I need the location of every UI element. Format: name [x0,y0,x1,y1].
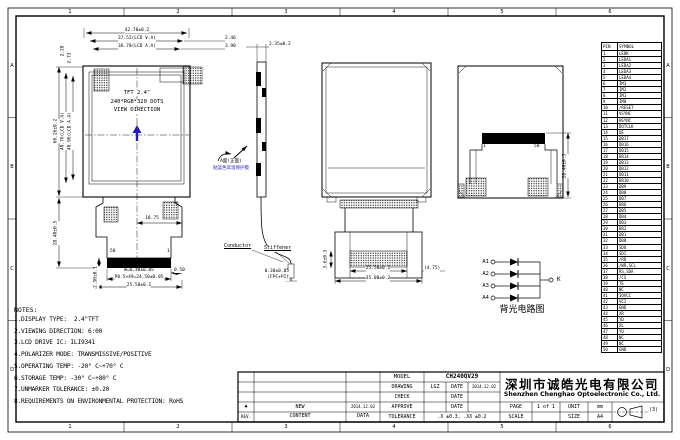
unit-label: UNIT [568,405,580,411]
grid-ref-label: 1 [65,9,75,15]
back-view-fpc [322,63,445,284]
corner-marks [323,63,430,197]
drawing-sheet: 123456 123456 ABCD ABCD 42.70±0.2 37.52(… [0,0,680,440]
dim-left-margin-2: 2.73 [69,53,74,64]
dim-band-width: 25.50±0.1 [366,267,390,272]
note-line: 8.REQUIREMENTS ON ENVIRONMENTAL PROTECTI… [14,396,240,408]
drawing-value: LGZ [430,385,439,391]
grid-ref-label: 1 [65,424,75,430]
drawing-label: DRAWING [391,385,412,391]
projection-symbol [613,406,648,418]
pin-50-label: 50 [110,250,115,255]
size-value: A4 [597,415,603,421]
anode-label: A4 [474,295,489,301]
revision-date: 2014.12.02 [351,405,375,409]
cathode-label: K [557,277,561,284]
note-line: 1.DISPLAY TYPE: 2.4"TFT [14,314,240,326]
data-column-label: DATA [357,414,369,420]
adhesive-pad-right [528,178,548,196]
dim-aa-height: 48.96(LCD A.A) [69,112,74,150]
flip-note-line2: 贴蓝色高温保护膜 [213,167,249,172]
pin-table-header-symbol: SYMBOL [618,43,662,51]
tolerance-label: TOLERANCE [388,415,415,421]
leader-lines [252,250,289,263]
approve-label: APPROVE [391,405,412,411]
dim-fpc-width: 25.50±0.1 [127,284,151,289]
model-label: MODEL [394,374,411,380]
led-row-1 [491,258,540,266]
back-view-folded [458,66,571,198]
check-date-label: DATE [451,395,463,401]
folded-pin-1: 1 [483,145,486,150]
grid-ref-label: C [664,266,672,272]
note-line: 5.OPERATING TEMP: -20° C~+70° C [14,361,240,373]
grid-ref-label: B [664,164,672,170]
pin-1-label: 1 [167,250,170,255]
grid-ref-label: 6 [605,9,615,15]
projection-angle-note: (3) [649,408,658,414]
note-line: 6.STORAGE TEMP: -30° C~+80° C [14,373,240,385]
grid-ref-label: 3 [281,424,291,430]
size-label: SIZE [568,415,580,421]
grid-ref-label: 2 [173,9,183,15]
pin-table: PIN SYMBOL 1 LEDK 2 LEDA1 3 LEDA2 [601,42,662,353]
back-view-outline [322,63,431,197]
grid-ref-label: B [8,164,16,170]
anode-label: A1 [474,259,489,265]
dim-right-margin-2: 3.90 [225,45,236,50]
grid-ref-label: 4 [389,9,399,15]
grid-ref-label: 5 [497,424,507,430]
dim-edge-margin: 0.50 [174,269,185,274]
folded-pin-50: 50 [534,145,539,150]
folded-connector-bar [482,133,545,144]
pin-number: 50 [602,347,618,353]
notes-block: NOTES: 1.DISPLAY TYPE: 2.4"TFT2.VIEWING … [14,306,240,408]
fpc-connector-bar [107,258,171,268]
model-value: CH240QV29 [446,374,479,381]
revision-content: NEW [295,405,304,411]
drawing-date-value: 2014.12.02 [472,385,496,389]
led-row-2 [491,270,540,278]
grid-ref-label: C [8,266,16,272]
dim-offset: (4.75) [424,267,440,272]
page-value: 1 of 1 [537,405,555,411]
grid-ref-label: D [664,367,672,373]
rev-column-label: REV. [241,415,251,420]
check-label: CHECK [394,395,409,401]
revision-mark: ▲ [244,404,247,410]
dim-fpc-length: 28.40±0.5 [55,221,60,245]
note-line: 4.POLARIZER MODE: TRANSMISSIVE/POSITIVE [14,349,240,361]
fpc-stackup-note: (FPC+PI) [259,276,289,281]
grid-ref-label: A [8,63,16,69]
stiffener-label: Stiffener [264,246,291,252]
grid-ref-label: 2 [173,424,183,430]
connector-contact-bar [340,200,418,208]
dim-total-height: 60.26±0.2 [55,119,60,143]
backlight-caption: 背光电路图 [499,306,544,316]
approve-date-label: DATE [451,405,463,411]
scale-label: SCALE [508,415,523,421]
stiffener-band [350,251,407,267]
dim-pad-pitch: P0.5×49=24.50±0.05 [115,276,164,281]
grid-ref-label: 3 [281,9,291,15]
dim-tail-offset: 2.50±0.1 [95,266,100,288]
tolerance-value: .X ±0.3, .XX ±0.2 [437,415,486,420]
content-column-label: CONTENT [289,414,310,420]
anode-label: A2 [474,271,489,277]
pin-table-row: 50 GND [602,347,662,353]
view-direction-arrow [133,125,142,141]
dim-fold-height: 28.40±0.5 [564,154,569,178]
led-row-3 [491,282,540,290]
dim-total-width: 42.70±0.2 [125,29,149,34]
grid-ref-label: A [664,63,672,69]
page-label: PAGE [510,405,522,411]
dim-va-width: 37.52(LCD V.A) [118,37,156,42]
backlight-circuit [491,258,553,302]
front-view [56,28,247,289]
dim-left-margin-1: 2.28 [62,46,67,57]
company-name-en: Shenzhen Chenghao Optoelectronic Co., Lt… [504,391,660,398]
pin-symbol: GND [618,347,662,353]
display-resolution-text: 240*RGB*320 DOTS [111,99,164,105]
drawing-date-label: DATE [451,385,463,391]
dim-trace-width: W=0.30±0.05 [124,269,154,274]
dim-thickness: 2.35±0.2 [269,43,291,48]
dim-right-margin-1: 2.46 [225,37,236,42]
note-line: 2.VIEWING DIRECTION: 6:00 [14,326,240,338]
adhesive-pad-left [466,178,486,196]
front-tape-pad [94,69,109,91]
dim-band-side: 3.6±0.5 [325,250,330,269]
dim-center-offset: 18.75 [145,217,159,222]
view-direction-text: VIEW DIRECTION [114,107,160,113]
led-row-4 [491,294,540,302]
note-line: 7.UNMARKER TOLERANCE: ±0.20 [14,384,240,396]
grid-ref-label: 6 [605,424,615,430]
dim-va-height: 49.76(LCD V.A) [62,112,67,150]
side-tape-marks [256,72,266,176]
anode-label: A3 [474,283,489,289]
display-type-text: TFT 2.4" [124,90,151,96]
dim-aa-width: 36.70(LCD A.A) [118,45,156,50]
flip-direction-arrow [234,146,247,158]
unit-value: mm [597,405,603,411]
grid-ref-label: 4 [389,424,399,430]
pin-table-header-pin: PIN [602,43,618,51]
flip-note-line1: A面(正面) [220,160,242,165]
notes-title: NOTES: [14,306,240,314]
front-tp-tail-pad [183,67,202,84]
conductor-label: Conductor [224,244,251,250]
grid-ref-label: 5 [497,9,507,15]
note-line: 3.LCD DRIVE IC: ILI9341 [14,337,240,349]
dim-outer-width: 35.00±0.2 [366,277,390,282]
cathode-node [549,278,553,282]
